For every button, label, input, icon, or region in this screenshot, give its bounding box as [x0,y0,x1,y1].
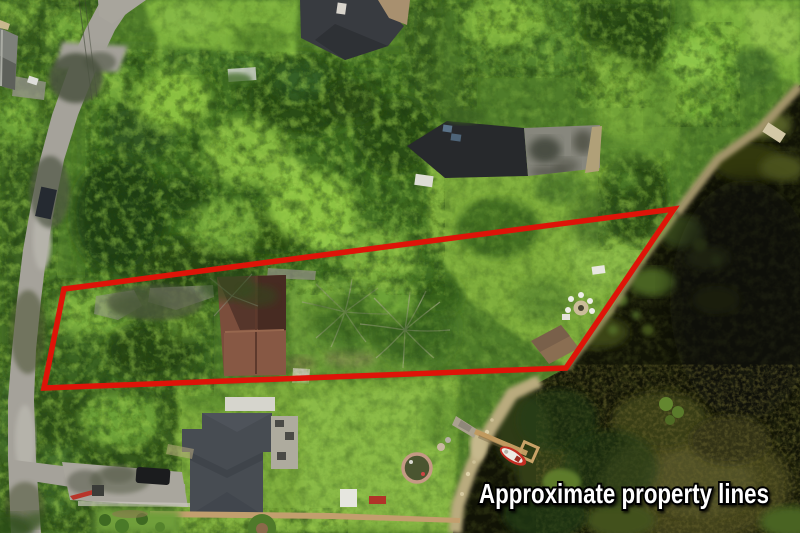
svg-text:Approximate property lines: Approximate property lines [479,478,769,509]
